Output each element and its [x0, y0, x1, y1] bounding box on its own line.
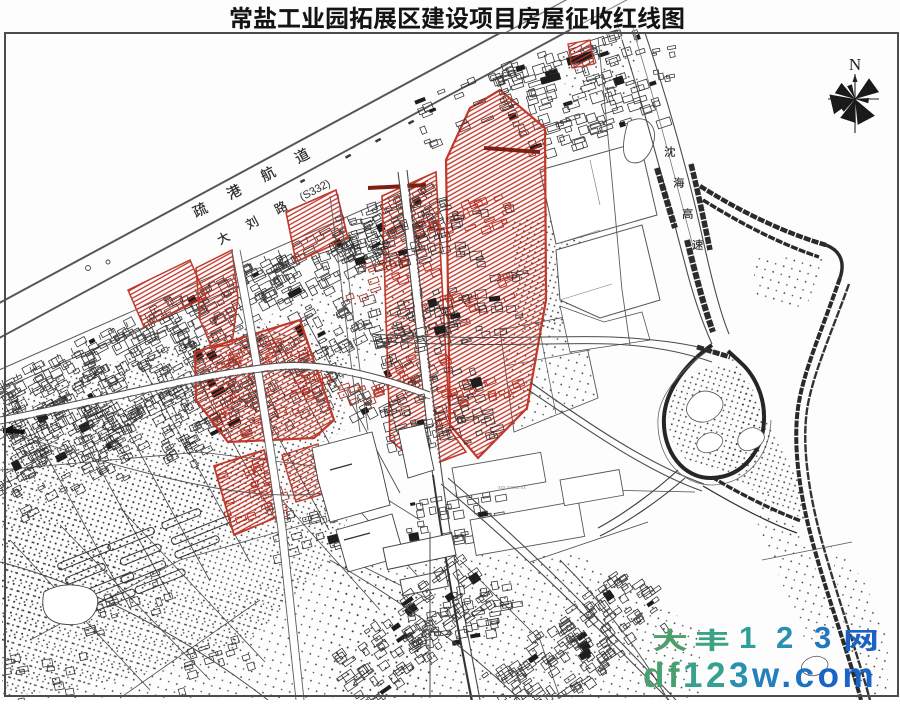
svg-text:df123w.com: df123w.com [643, 656, 877, 695]
svg-text:3: 3 [814, 620, 831, 655]
svg-text:1: 1 [739, 620, 756, 655]
svg-text:N: N [849, 55, 861, 74]
svg-text:xxx xxxxx xx: xxx xxxxx xx [498, 485, 526, 491]
svg-text:2: 2 [776, 620, 793, 655]
